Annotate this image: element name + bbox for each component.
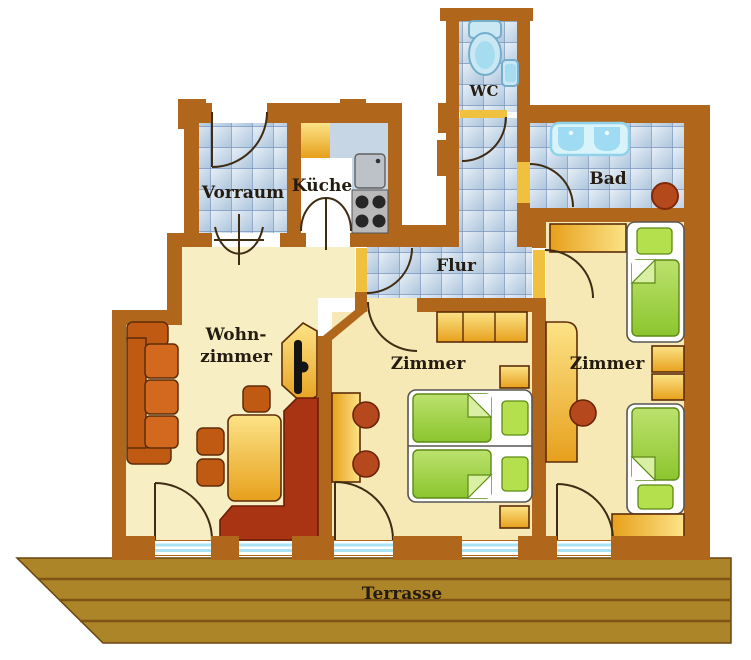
drain-icon xyxy=(605,131,609,135)
vorraum-entry-opening xyxy=(212,99,267,123)
burner-icon xyxy=(373,196,386,209)
wall-pier xyxy=(112,536,155,560)
wc-label: WC xyxy=(469,82,499,100)
vorraum-label: Vorraum xyxy=(201,183,284,203)
wall xyxy=(684,105,710,556)
wall-pier xyxy=(393,536,462,560)
wall xyxy=(280,233,306,247)
bad-label: Bad xyxy=(589,169,626,189)
chair xyxy=(243,386,270,412)
pillow xyxy=(502,457,528,491)
nightstand xyxy=(652,374,684,400)
desk xyxy=(546,322,577,462)
burner-icon xyxy=(356,215,369,228)
stool-icon xyxy=(570,400,596,426)
zimmer-mitte-label: Zimmer xyxy=(391,354,467,374)
flur-floor xyxy=(459,118,517,247)
stool-icon xyxy=(353,402,379,428)
bath-stool-icon xyxy=(652,183,678,209)
kueche-label: Küche xyxy=(292,176,352,196)
dining-table xyxy=(228,415,281,501)
nightstand xyxy=(652,346,684,372)
stove-icon xyxy=(352,190,388,233)
sofa-cushion xyxy=(145,380,178,414)
sofa-cushion xyxy=(145,344,178,378)
wall xyxy=(517,118,530,162)
wall-pilaster xyxy=(438,103,459,133)
floorplan-svg: Vorraum Küche WC Bad Flur Wohn- zimmer Z… xyxy=(0,0,751,660)
wall xyxy=(184,103,199,247)
zimmer-rechts-label: Zimmer xyxy=(570,354,646,374)
flur-label: Flur xyxy=(436,256,477,276)
wall-pilaster xyxy=(437,140,447,176)
burner-icon xyxy=(356,196,369,209)
faucet-icon xyxy=(376,159,381,164)
wall-pier xyxy=(292,536,334,560)
wall xyxy=(517,105,710,123)
flur-threshold xyxy=(356,248,367,292)
drain-icon xyxy=(569,131,573,135)
wall-pier xyxy=(518,536,557,560)
wall-pilaster xyxy=(340,99,366,127)
wardrobe xyxy=(437,312,527,342)
window xyxy=(555,541,613,555)
chair xyxy=(197,428,224,455)
window xyxy=(237,541,294,555)
toilet-bowl-icon xyxy=(475,41,495,69)
zimmer-rechts-threshold xyxy=(533,250,545,298)
kitchen-cabinet xyxy=(301,123,330,158)
window xyxy=(153,541,213,555)
window xyxy=(332,541,395,555)
wohnzimmer-floor xyxy=(182,247,355,298)
wall xyxy=(532,208,546,248)
sink-basin-icon xyxy=(594,127,620,151)
pillow xyxy=(638,485,673,509)
floorplan-page: Vorraum Küche WC Bad Flur Wohn- zimmer Z… xyxy=(0,0,751,660)
nightstand xyxy=(500,506,529,528)
kitchen-sink-icon xyxy=(355,154,385,188)
zimmer-mitte-door-gap xyxy=(367,298,417,312)
sink-basin-icon xyxy=(558,127,584,151)
window xyxy=(460,541,520,555)
stool-icon xyxy=(353,451,379,477)
wall xyxy=(532,298,546,556)
sideboard xyxy=(612,514,684,538)
wc-sink-basin-icon xyxy=(505,64,516,82)
wc-threshold xyxy=(460,110,507,118)
tv-icon xyxy=(298,362,309,373)
wall xyxy=(318,336,332,556)
nightstand xyxy=(500,366,529,388)
terrasse-label: Terrasse xyxy=(362,584,443,604)
wardrobe xyxy=(550,224,626,252)
wall-pier xyxy=(211,536,239,560)
wall xyxy=(112,310,126,556)
sofa-back xyxy=(127,338,146,448)
wohnzimmer-label-line2: zimmer xyxy=(200,347,273,367)
wall-pier xyxy=(611,536,710,560)
burner-icon xyxy=(373,215,386,228)
pillow xyxy=(502,401,528,435)
sofa-cushion xyxy=(145,416,178,448)
wohnzimmer-label-line1: Wohn- xyxy=(205,325,267,345)
pillow xyxy=(637,228,672,254)
bad-threshold xyxy=(517,162,530,203)
chair xyxy=(197,459,224,486)
